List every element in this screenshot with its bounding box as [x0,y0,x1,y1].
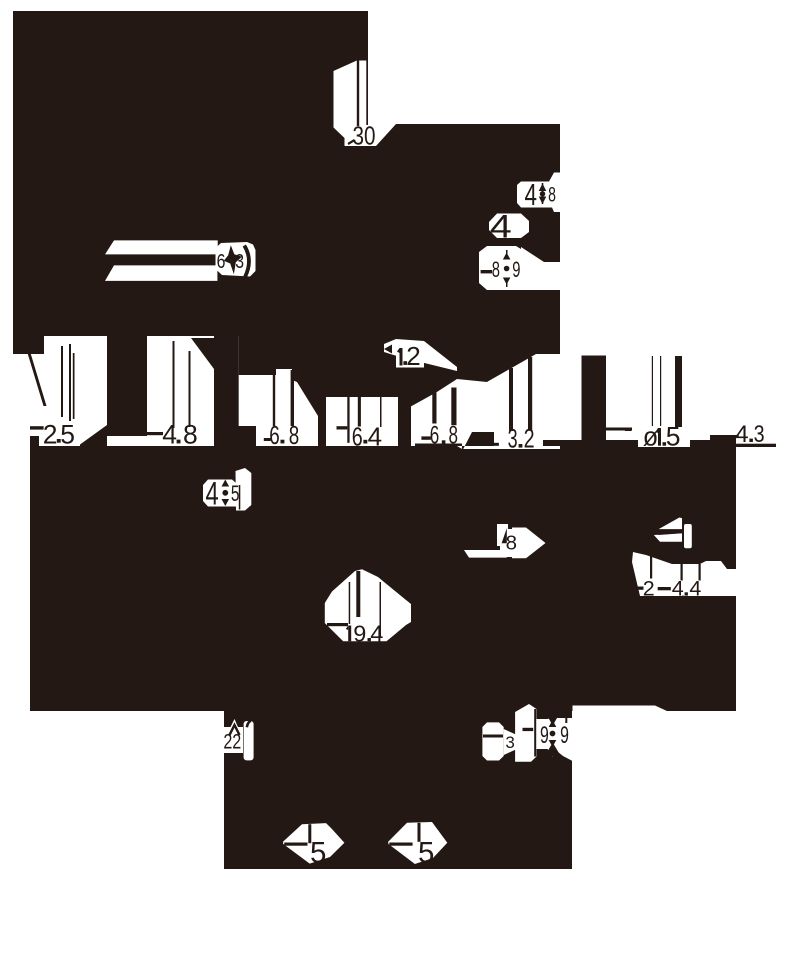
svg-text:3: 3 [235,251,244,273]
svg-text:2: 2 [643,577,655,601]
svg-text:2: 2 [524,424,535,454]
svg-text:4: 4 [368,422,382,452]
svg-text:6: 6 [352,422,363,452]
svg-text:4: 4 [672,577,684,601]
svg-text:8: 8 [492,257,500,282]
svg-text:3: 3 [505,733,514,752]
svg-text:4: 4 [525,177,538,212]
svg-text:2: 2 [232,730,241,754]
svg-text:5: 5 [231,481,240,506]
svg-text:9: 9 [540,722,549,749]
svg-text:4: 4 [370,620,383,646]
svg-text:8: 8 [548,184,556,207]
svg-text:8: 8 [289,420,300,450]
svg-text:6: 6 [269,420,280,450]
svg-text:5: 5 [666,422,681,452]
svg-text:5: 5 [60,420,75,450]
svg-text:4: 4 [206,475,219,511]
svg-text:2: 2 [43,420,58,450]
svg-text:5: 5 [418,836,434,869]
svg-text:30: 30 [353,121,376,151]
svg-text:9: 9 [560,722,569,749]
svg-text:ø: ø [643,424,659,452]
svg-text:5: 5 [310,836,326,869]
svg-text:9: 9 [512,257,520,282]
svg-text:9: 9 [353,620,366,646]
svg-text:4: 4 [689,577,701,601]
svg-text:4: 4 [162,420,177,450]
svg-text:4: 4 [490,208,512,244]
svg-text:6: 6 [217,251,226,273]
svg-text:8: 8 [183,420,198,450]
svg-text:2: 2 [406,341,420,371]
svg-text:8: 8 [506,532,517,555]
svg-text:3: 3 [508,424,518,454]
svg-text:2: 2 [223,730,232,754]
